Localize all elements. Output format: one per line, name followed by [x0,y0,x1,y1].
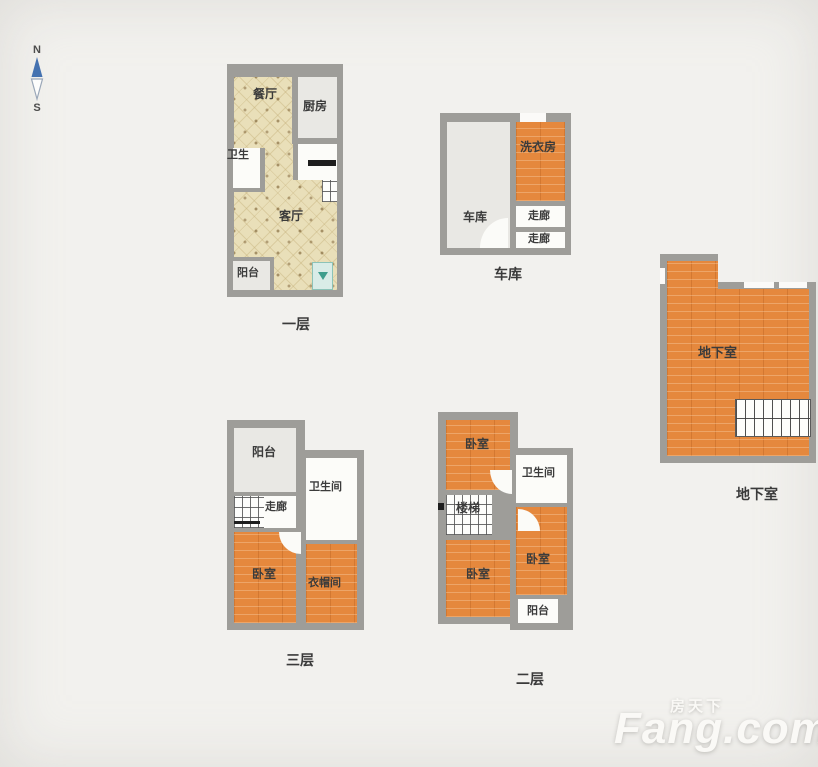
compass-north-label: N [33,44,41,56]
window [660,268,665,284]
garage-plan: 车库 洗衣房 走廊 走廊 [440,113,571,255]
room-label-bath: 卫生间 [309,482,342,493]
room-label-bedroom-top: 卧室 [465,438,489,450]
room-label-corridor-a: 走廊 [528,211,550,222]
caption-floor1: 一层 [265,316,327,332]
room-label-basement: 地下室 [698,346,737,359]
room-label-dining: 餐厅 [253,88,277,100]
stair-rail [234,521,260,524]
floor3-bathroom [306,458,357,540]
window [520,113,546,122]
room-label-balcony: 阳台 [527,606,549,617]
window [779,282,807,288]
room-label-balcony: 阳台 [237,268,259,279]
room-label-bedroom: 卧室 [252,568,276,580]
floor3-balcony [234,428,296,492]
window [744,282,774,288]
room-label-garage: 车库 [463,211,487,223]
north-arrow-icon [28,56,46,102]
ac-unit-icon [312,262,333,290]
laundry-room [516,122,565,201]
room-label-bath: 卫生间 [522,468,555,479]
compass-south-label: S [33,102,40,114]
fang-watermark: 房天下 Fang.com [612,690,818,762]
floor3-plan: 阳台 卫生间 走廊 卧室 衣帽间 [227,420,364,630]
room-label-living: 客厅 [279,210,303,222]
room-label-balcony: 阳台 [252,446,276,458]
counter-bar [308,160,336,166]
stair-rail [438,503,444,510]
room-label-stairs: 楼梯 [456,502,480,514]
room-label-corridor: 走廊 [265,502,287,513]
basement-plan: 地下室 [660,254,816,463]
floor1-plan: 餐厅 厨房 卫生 客厅 阳台 [227,64,343,297]
room-label-kitchen: 厨房 [303,100,327,112]
watermark-logo-text: Fang.com [614,704,818,754]
caption-garage: 车库 [478,266,538,282]
compass-icon: N S [22,44,52,116]
floor2-bathroom [516,455,567,503]
floorplan-image: N S 餐厅 厨房 卫生 客厅 阳台 一层 [0,0,818,767]
caption-floor2: 二层 [500,671,560,687]
floor1-stairs [322,180,337,202]
room-label-bath: 卫生 [227,150,249,161]
room-label-bedroom-left: 卧室 [466,568,490,580]
basement-stairs [735,399,811,437]
caption-basement: 地下室 [736,486,780,502]
floor2-plan: 卧室 卫生间 楼梯 卧室 卧室 阳台 [438,410,573,630]
room-label-bedroom-right: 卧室 [526,553,550,565]
room-label-closet: 衣帽间 [308,578,341,589]
caption-floor3: 三层 [270,652,330,668]
room-label-laundry: 洗衣房 [520,141,556,153]
room-label-corridor-b: 走廊 [528,234,550,245]
